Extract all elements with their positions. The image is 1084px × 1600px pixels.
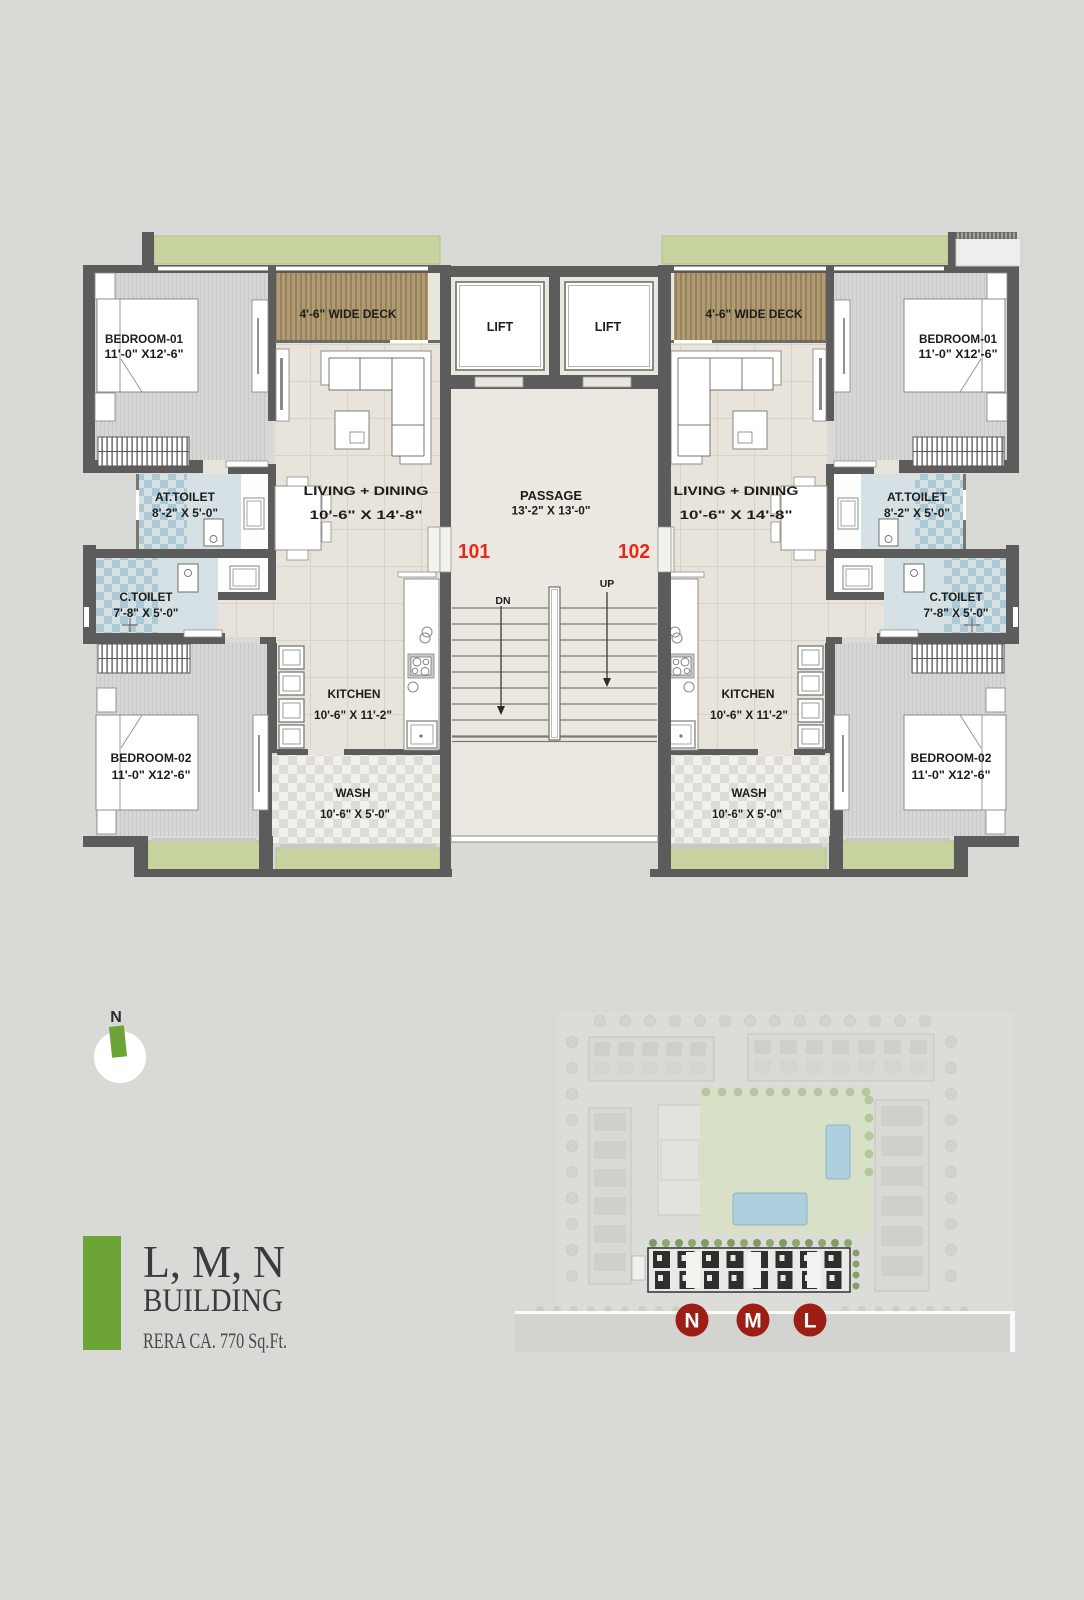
svg-text:11'-0" X12'-6": 11'-0" X12'-6" <box>112 770 191 782</box>
svg-text:10'-6" X 5'-0": 10'-6" X 5'-0" <box>320 809 390 821</box>
svg-text:102: 102 <box>618 541 650 563</box>
svg-text:10'-6" X 11'-2": 10'-6" X 11'-2" <box>710 710 788 722</box>
svg-text:11'-0" X12'-6": 11'-0" X12'-6" <box>919 349 998 361</box>
svg-text:BEDROOM-02: BEDROOM-02 <box>911 753 992 765</box>
svg-text:DN: DN <box>495 595 510 607</box>
svg-text:BEDROOM-01: BEDROOM-01 <box>105 334 184 346</box>
svg-text:AT.TOILET: AT.TOILET <box>887 492 947 504</box>
svg-text:L: L <box>804 1310 817 1333</box>
svg-text:11'-0" X12'-6": 11'-0" X12'-6" <box>912 770 991 782</box>
svg-text:LIVING + DINING: LIVING + DINING <box>674 486 799 498</box>
svg-text:4'-6" WIDE DECK: 4'-6" WIDE DECK <box>706 307 803 321</box>
svg-text:N: N <box>110 1009 122 1026</box>
svg-text:KITCHEN: KITCHEN <box>328 689 381 701</box>
svg-text:7'-8" X 5'-0": 7'-8" X 5'-0" <box>924 608 989 620</box>
svg-text:L, M, N: L, M, N <box>143 1236 285 1287</box>
svg-text:WASH: WASH <box>732 788 767 800</box>
svg-text:BEDROOM-02: BEDROOM-02 <box>111 753 192 765</box>
svg-text:10'-6" X 14'-8": 10'-6" X 14'-8" <box>680 510 793 522</box>
svg-text:10'-6" X 11'-2": 10'-6" X 11'-2" <box>314 710 392 722</box>
svg-text:LIFT: LIFT <box>487 320 514 334</box>
svg-text:WASH: WASH <box>336 788 371 800</box>
svg-text:RERA CA. 770 Sq.Ft.: RERA CA. 770 Sq.Ft. <box>143 1328 287 1353</box>
svg-text:4'-6" WIDE DECK: 4'-6" WIDE DECK <box>300 307 397 321</box>
svg-text:UP: UP <box>600 578 615 590</box>
svg-text:LIVING + DINING: LIVING + DINING <box>304 486 429 498</box>
svg-text:10'-6" X 14'-8": 10'-6" X 14'-8" <box>310 510 423 522</box>
svg-text:10'-6" X 5'-0": 10'-6" X 5'-0" <box>712 809 782 821</box>
svg-text:8'-2" X 5'-0": 8'-2" X 5'-0" <box>884 508 950 520</box>
svg-text:13'-2" X 13'-0": 13'-2" X 13'-0" <box>512 506 591 518</box>
svg-text:8'-2" X 5'-0": 8'-2" X 5'-0" <box>152 508 218 520</box>
svg-text:11'-0" X12'-6": 11'-0" X12'-6" <box>105 349 184 361</box>
svg-text:KITCHEN: KITCHEN <box>722 689 775 701</box>
svg-text:M: M <box>744 1310 762 1333</box>
svg-text:PASSAGE: PASSAGE <box>520 489 582 503</box>
svg-text:C.TOILET: C.TOILET <box>930 592 983 604</box>
svg-text:BEDROOM-01: BEDROOM-01 <box>919 334 998 346</box>
svg-text:LIFT: LIFT <box>595 320 622 334</box>
svg-text:AT.TOILET: AT.TOILET <box>155 492 215 504</box>
svg-text:BUILDING: BUILDING <box>143 1283 283 1319</box>
svg-text:C.TOILET: C.TOILET <box>120 592 173 604</box>
svg-text:7'-8" X 5'-0": 7'-8" X 5'-0" <box>114 608 179 620</box>
svg-text:N: N <box>684 1310 699 1333</box>
svg-text:101: 101 <box>458 541 490 563</box>
